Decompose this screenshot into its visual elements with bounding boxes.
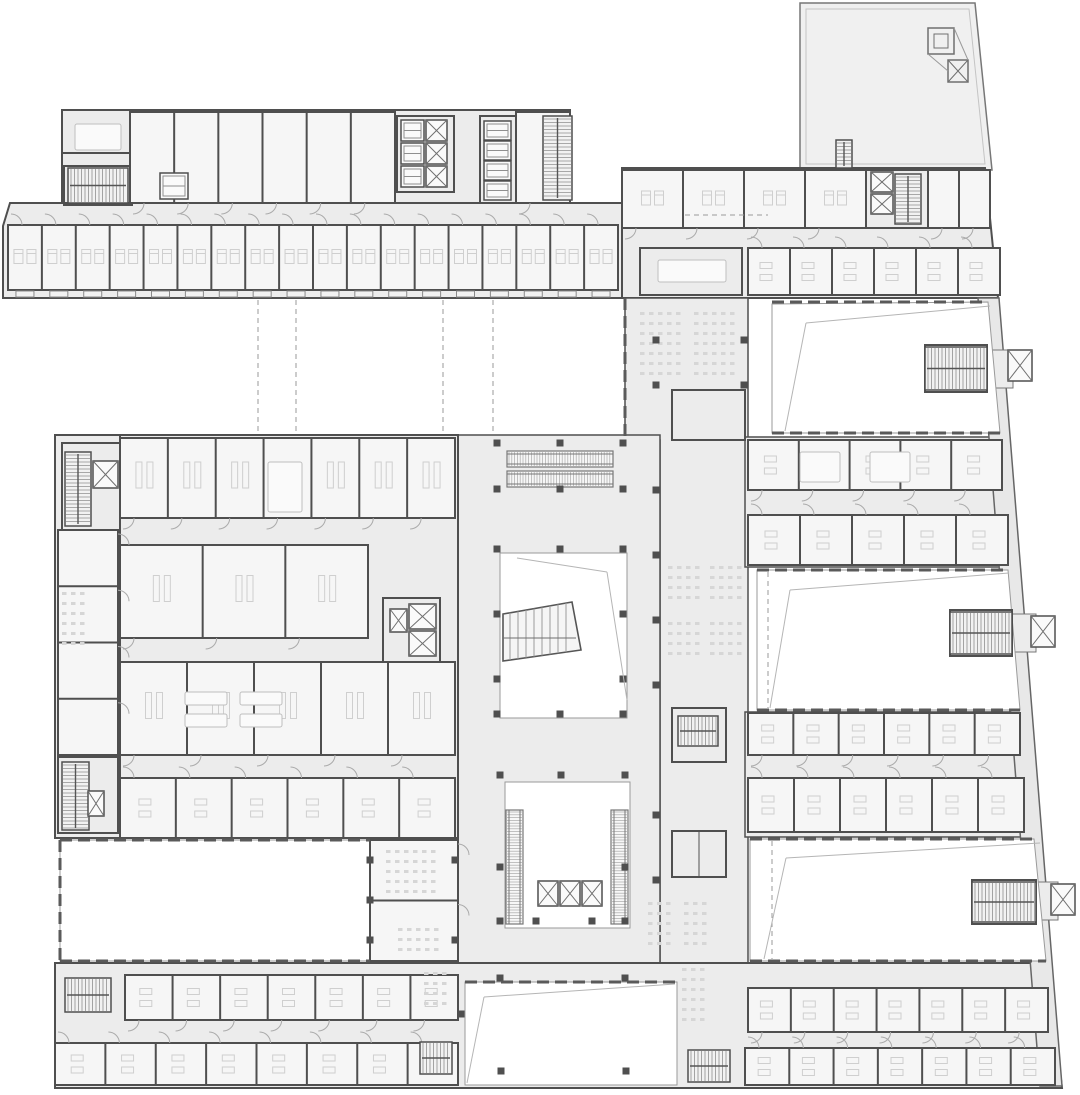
column: [622, 975, 629, 982]
seat: [710, 576, 715, 579]
column: [497, 975, 504, 982]
seat: [728, 652, 733, 655]
seat: [730, 352, 735, 355]
seat: [62, 632, 67, 635]
seat: [691, 1008, 696, 1011]
west-block-row-2: [120, 545, 368, 649]
seat: [702, 942, 707, 945]
seat: [728, 566, 733, 569]
west-block-row-3: [120, 662, 455, 766]
seat: [431, 850, 436, 853]
seat: [737, 622, 742, 625]
seat: [648, 932, 653, 935]
seat: [422, 860, 427, 863]
seat: [737, 632, 742, 635]
seat: [703, 322, 708, 325]
seat: [395, 880, 400, 883]
west-block-edge-rooms: [58, 530, 129, 755]
seat: [668, 642, 673, 645]
seat: [62, 592, 67, 595]
bay-window: [253, 291, 271, 297]
seat: [649, 312, 654, 315]
seat: [695, 622, 700, 625]
stair-south-center: [420, 1042, 452, 1074]
seat: [667, 352, 672, 355]
seat: [71, 602, 76, 605]
seat: [721, 332, 726, 335]
seat: [730, 332, 735, 335]
column: [741, 337, 748, 344]
seat: [442, 982, 447, 985]
seat: [666, 902, 671, 905]
seat: [730, 362, 735, 365]
seat: [691, 998, 696, 1001]
seat: [719, 652, 724, 655]
seat: [71, 622, 76, 625]
seat: [728, 576, 733, 579]
seat: [658, 352, 663, 355]
seat: [693, 912, 698, 915]
seat: [422, 870, 427, 873]
column: [620, 611, 627, 618]
seat: [703, 332, 708, 335]
seat: [640, 332, 645, 335]
seat: [700, 988, 705, 991]
elevator-icon: [1051, 884, 1075, 915]
elevator-icon: [390, 609, 407, 632]
seat: [407, 928, 412, 931]
column: [367, 937, 374, 944]
column: [622, 864, 629, 871]
seat: [702, 902, 707, 905]
seat: [667, 362, 672, 365]
seat: [737, 566, 742, 569]
seat: [395, 870, 400, 873]
bay-window: [355, 291, 373, 297]
seat: [416, 938, 421, 941]
seat: [682, 978, 687, 981]
elevator-icon: [409, 631, 436, 656]
seat: [80, 622, 85, 625]
seat: [684, 922, 689, 925]
stair-south-wing-east: [688, 1050, 730, 1082]
seat: [395, 850, 400, 853]
seat: [737, 576, 742, 579]
seat: [676, 312, 681, 315]
column: [497, 918, 504, 925]
seat: [700, 998, 705, 1001]
seat: [703, 372, 708, 375]
seat: [703, 362, 708, 365]
seat: [686, 622, 691, 625]
seat: [398, 948, 403, 951]
seat: [721, 372, 726, 375]
seat: [668, 632, 673, 635]
west-courtyard: [60, 840, 370, 961]
table-icon: [185, 692, 227, 705]
seat: [693, 942, 698, 945]
elevator-icon: [871, 194, 893, 214]
seat: [668, 652, 673, 655]
seat: [424, 972, 429, 975]
seat: [677, 642, 682, 645]
column: [494, 611, 501, 618]
seat: [719, 622, 724, 625]
bay-window: [152, 291, 170, 297]
seat: [413, 870, 418, 873]
column: [653, 487, 660, 494]
seat: [676, 372, 681, 375]
seat: [728, 632, 733, 635]
seat: [398, 928, 403, 931]
seat: [413, 860, 418, 863]
bay-window: [389, 291, 407, 297]
seat: [719, 566, 724, 569]
seat: [422, 850, 427, 853]
seat: [442, 972, 447, 975]
seat: [694, 332, 699, 335]
seat: [676, 322, 681, 325]
seat: [658, 362, 663, 365]
seat: [666, 912, 671, 915]
seat: [694, 342, 699, 345]
seat: [728, 586, 733, 589]
column: [557, 486, 564, 493]
elevator-icon: [1008, 350, 1032, 381]
seat: [712, 342, 717, 345]
seat: [657, 932, 662, 935]
seat: [684, 932, 689, 935]
seat: [640, 362, 645, 365]
elevator-icon: [426, 143, 447, 164]
seat: [62, 622, 67, 625]
seat: [668, 622, 673, 625]
seat: [62, 612, 67, 615]
seat: [71, 592, 76, 595]
seat: [695, 576, 700, 579]
seat: [649, 322, 654, 325]
seat: [395, 890, 400, 893]
seat: [684, 912, 689, 915]
seat: [431, 890, 436, 893]
seat: [425, 928, 430, 931]
seat: [710, 566, 715, 569]
seat: [649, 372, 654, 375]
seat: [404, 880, 409, 883]
seat: [80, 612, 85, 615]
stair-west-block-north: [65, 452, 91, 526]
seat: [702, 922, 707, 925]
escalator-icon: [506, 810, 523, 924]
seat: [695, 652, 700, 655]
seat: [431, 870, 436, 873]
seat: [648, 912, 653, 915]
elevator-icon: [88, 791, 104, 816]
stair-west-block-south: [62, 762, 89, 830]
seat: [677, 566, 682, 569]
seat: [730, 312, 735, 315]
seat: [730, 372, 735, 375]
table-icon: [185, 714, 227, 727]
seat: [686, 576, 691, 579]
column: [494, 486, 501, 493]
seat: [667, 312, 672, 315]
seat: [710, 632, 715, 635]
elevator-icon: [160, 173, 188, 199]
seat: [695, 642, 700, 645]
column: [620, 546, 627, 553]
seat: [640, 372, 645, 375]
stair-north-wing-east: [543, 116, 572, 200]
table-icon: [658, 260, 726, 282]
seat: [684, 942, 689, 945]
table-icon: [240, 714, 282, 727]
seat: [700, 1018, 705, 1021]
seat: [710, 642, 715, 645]
seat: [682, 998, 687, 1001]
column: [494, 440, 501, 447]
elevator-icon: [560, 881, 580, 906]
elevator-icon: [401, 120, 424, 141]
seat: [668, 586, 673, 589]
seat: [667, 332, 672, 335]
column: [589, 918, 596, 925]
elevator-icon: [871, 172, 893, 192]
seat: [677, 576, 682, 579]
seat: [676, 352, 681, 355]
seat: [62, 642, 67, 645]
seat: [693, 902, 698, 905]
column: [653, 682, 660, 689]
seat: [693, 932, 698, 935]
stair-east-pod-1: [925, 347, 987, 390]
seat: [668, 576, 673, 579]
seat: [719, 576, 724, 579]
seat: [728, 642, 733, 645]
seat: [737, 652, 742, 655]
seat: [649, 352, 654, 355]
seat: [691, 1018, 696, 1021]
seat: [62, 602, 67, 605]
seat: [386, 870, 391, 873]
seat: [433, 992, 438, 995]
seat: [686, 632, 691, 635]
column: [494, 676, 501, 683]
table-icon: [870, 452, 910, 482]
column: [452, 937, 459, 944]
seat: [730, 342, 735, 345]
seat: [710, 622, 715, 625]
seat: [666, 942, 671, 945]
seat: [666, 932, 671, 935]
stair-east-pod-3: [972, 882, 1036, 922]
bay-window: [457, 291, 475, 297]
seat: [728, 622, 733, 625]
column: [620, 711, 627, 718]
seat: [686, 566, 691, 569]
seat: [693, 922, 698, 925]
seat: [424, 1002, 429, 1005]
seat: [657, 942, 662, 945]
seat: [433, 972, 438, 975]
seat: [712, 352, 717, 355]
table-icon: [800, 452, 840, 482]
column: [653, 812, 660, 819]
seat: [386, 860, 391, 863]
seat: [649, 362, 654, 365]
column: [458, 1011, 465, 1018]
elevator-icon: [426, 166, 447, 187]
stair-east-pod-2: [950, 612, 1012, 654]
seat: [703, 342, 708, 345]
column: [623, 1068, 630, 1075]
seat: [648, 902, 653, 905]
seat: [710, 652, 715, 655]
column: [452, 857, 459, 864]
seat: [712, 332, 717, 335]
column: [498, 1068, 505, 1075]
seat: [712, 362, 717, 365]
seat: [657, 922, 662, 925]
room-band: [120, 545, 368, 638]
seat: [71, 612, 76, 615]
column: [622, 918, 629, 925]
seat: [721, 342, 726, 345]
column: [622, 772, 629, 779]
seat: [80, 632, 85, 635]
column: [620, 440, 627, 447]
stair-terrace: [836, 140, 852, 168]
seat: [677, 596, 682, 599]
seat: [721, 362, 726, 365]
escalator-icon: [507, 471, 613, 487]
seat: [658, 322, 663, 325]
seat: [442, 992, 447, 995]
seat: [694, 372, 699, 375]
floor-plan-page: [0, 0, 1080, 1095]
seat: [695, 632, 700, 635]
bay-window: [50, 291, 68, 297]
seat: [657, 902, 662, 905]
bay-window: [490, 291, 508, 297]
entry-void-south: [465, 982, 677, 1085]
seat: [404, 860, 409, 863]
seat: [721, 352, 726, 355]
elevator-icon: [538, 881, 558, 906]
seat: [413, 880, 418, 883]
seat: [425, 948, 430, 951]
seat: [691, 968, 696, 971]
seat: [676, 362, 681, 365]
column: [741, 382, 748, 389]
seat: [649, 332, 654, 335]
stair-spine: [678, 716, 718, 746]
seat: [413, 890, 418, 893]
elevator-icon: [582, 881, 602, 906]
bay-window: [558, 291, 576, 297]
seat: [667, 342, 672, 345]
seat: [686, 586, 691, 589]
seat: [407, 938, 412, 941]
seat: [682, 968, 687, 971]
seat: [425, 938, 430, 941]
seat: [702, 912, 707, 915]
column: [653, 382, 660, 389]
elevator-icon: [401, 143, 424, 164]
seat: [686, 652, 691, 655]
table-icon: [75, 124, 121, 150]
bay-window: [592, 291, 610, 297]
seat: [433, 1002, 438, 1005]
seat: [710, 586, 715, 589]
seat: [657, 912, 662, 915]
column: [653, 552, 660, 559]
seat: [404, 850, 409, 853]
elevator-icon: [1031, 616, 1055, 647]
elevator-icon: [484, 181, 511, 200]
seat: [668, 596, 673, 599]
seat: [721, 322, 726, 325]
escalator-icon: [507, 451, 613, 467]
column: [557, 440, 564, 447]
seat: [640, 322, 645, 325]
roof-terrace: [800, 3, 992, 170]
bay-window: [84, 291, 102, 297]
stair-northwest-core: [68, 168, 128, 203]
seat: [719, 632, 724, 635]
column: [557, 546, 564, 553]
seat: [686, 596, 691, 599]
column: [367, 897, 374, 904]
seat: [398, 938, 403, 941]
seat: [407, 948, 412, 951]
column: [620, 486, 627, 493]
seat: [667, 322, 672, 325]
seat: [676, 342, 681, 345]
seat: [719, 642, 724, 645]
column: [653, 877, 660, 884]
seat: [703, 352, 708, 355]
room-band: [745, 1048, 1055, 1085]
seat: [702, 932, 707, 935]
elevator-icon: [484, 121, 511, 140]
column: [533, 918, 540, 925]
seat: [416, 928, 421, 931]
seat: [686, 642, 691, 645]
seat: [658, 312, 663, 315]
seat: [658, 332, 663, 335]
seat: [648, 922, 653, 925]
seat: [719, 596, 724, 599]
column: [494, 546, 501, 553]
column: [497, 864, 504, 871]
elevator-icon: [484, 141, 511, 160]
seat: [431, 860, 436, 863]
seat: [640, 342, 645, 345]
seat: [433, 982, 438, 985]
seat: [424, 992, 429, 995]
seat: [728, 596, 733, 599]
room-band: [748, 515, 1008, 565]
seat: [658, 372, 663, 375]
seat: [737, 596, 742, 599]
seat: [712, 322, 717, 325]
seat: [677, 586, 682, 589]
elevator-icon: [409, 604, 436, 629]
column: [497, 772, 504, 779]
west-block-row-4: [120, 767, 455, 838]
seat: [700, 978, 705, 981]
